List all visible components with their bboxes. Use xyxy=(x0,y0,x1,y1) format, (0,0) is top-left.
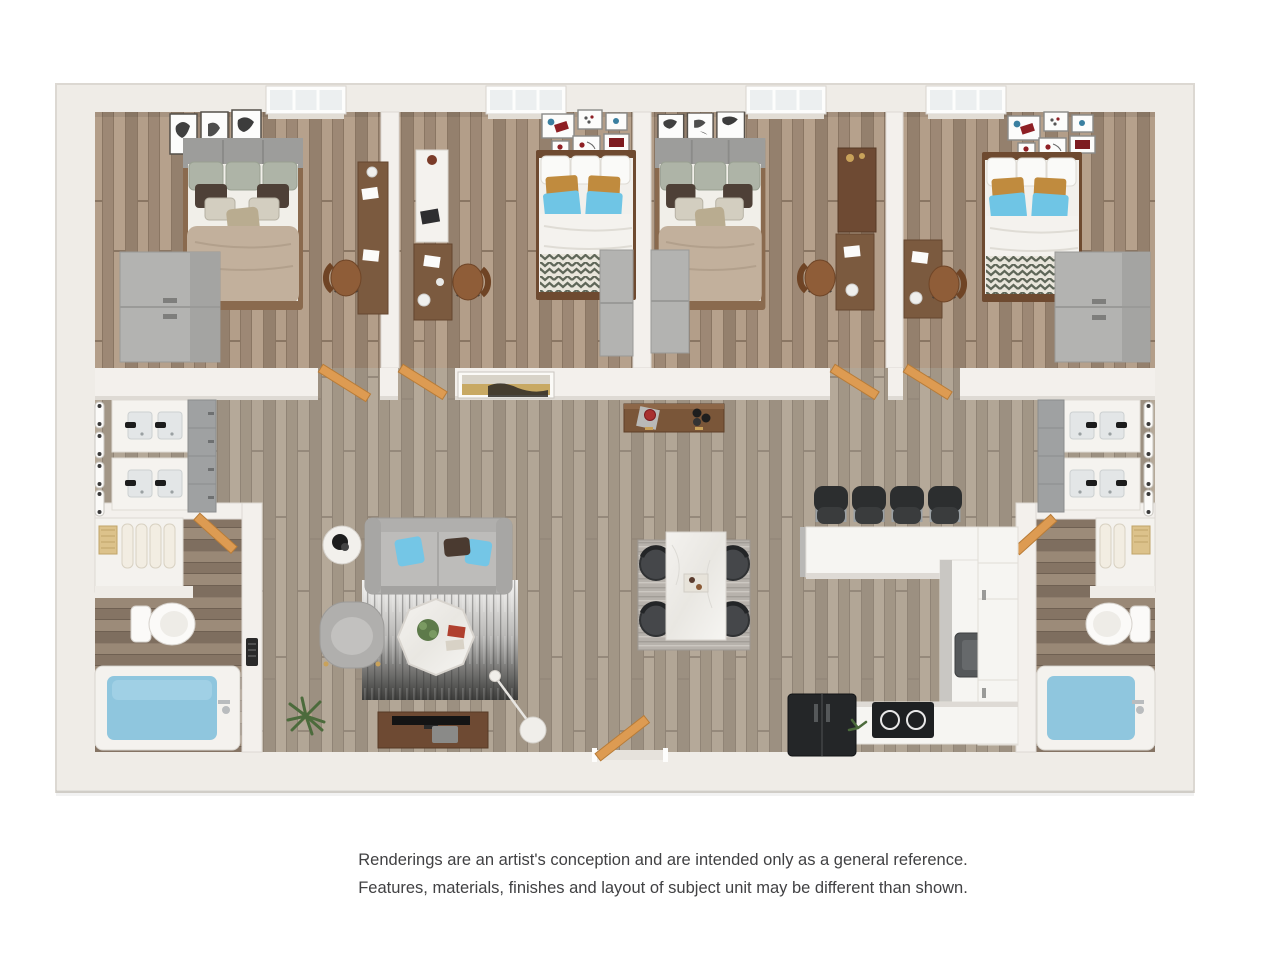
side-table-icon xyxy=(323,526,361,564)
wall-vent-icon xyxy=(246,638,258,666)
bedroom-3-chair-icon xyxy=(800,260,835,296)
refrigerator-icon xyxy=(788,694,856,756)
bedroom-3-wardrobe-icon xyxy=(838,148,876,232)
bar-stool-icon xyxy=(890,486,924,524)
bathroom-left-bathtub-icon xyxy=(95,666,240,750)
bedroom-2-desk-icon xyxy=(414,244,452,320)
bar-stool-icon xyxy=(852,486,886,524)
sconce-icon xyxy=(95,402,104,428)
bedroom-4-window-icon xyxy=(926,86,1006,119)
bedroom-3-wall-art-icon xyxy=(658,112,744,138)
floor-plan-svg xyxy=(0,0,1280,820)
floor-plan-image xyxy=(0,0,1280,820)
bedroom-3-dresser-icon xyxy=(651,250,689,353)
bathroom-left-vanity-2-icon xyxy=(112,458,188,510)
bathroom-left-cabinet-icon xyxy=(188,400,216,512)
sconce-icon xyxy=(1144,402,1153,428)
sofa-icon xyxy=(365,518,512,594)
bar-stool-icon xyxy=(928,486,962,524)
bathroom-right-towel-shelf-icon xyxy=(1090,518,1155,598)
bedroom-3-desk-icon xyxy=(836,234,874,310)
sconce-icon xyxy=(95,490,104,516)
bedroom-2-chair-icon xyxy=(453,264,488,300)
bedroom-2-dresser-icon xyxy=(600,250,633,356)
sconce-icon xyxy=(95,462,104,488)
hallway-art xyxy=(458,372,554,398)
bedroom-1-desk-icon xyxy=(358,162,388,314)
bathroom-right-toilet-icon xyxy=(1086,603,1150,645)
bathroom-right-cabinet-icon xyxy=(1038,400,1064,512)
bedroom-3-window-icon xyxy=(746,86,826,119)
disclaimer: Renderings are an artist's conception an… xyxy=(23,846,1280,902)
bathroom-left-toilet-icon xyxy=(131,603,195,645)
bedroom-4-chair-icon xyxy=(929,266,964,302)
dining-area xyxy=(638,532,750,650)
disclaimer-line-2: Features, materials, finishes and layout… xyxy=(23,874,1280,902)
bathroom-left-vanity-1-icon xyxy=(112,400,188,452)
bedroom-1-window-icon xyxy=(266,86,346,119)
bedroom-2-wardrobe-icon xyxy=(416,150,448,242)
bathroom-right-bathtub-icon xyxy=(1037,666,1155,750)
sconce-icon xyxy=(1144,490,1153,516)
cooktop-icon xyxy=(872,702,934,738)
console-table-icon xyxy=(624,404,724,432)
bar-stool-icon xyxy=(814,486,848,524)
tv-stand-icon xyxy=(378,712,488,748)
bathroom-left-towel-shelf-icon xyxy=(95,518,193,598)
bedroom-4-dresser-icon xyxy=(1055,252,1150,362)
bedroom-1-chair-icon xyxy=(326,260,361,296)
dining-table-icon xyxy=(666,532,726,640)
bedroom-1-dresser-icon xyxy=(120,252,220,362)
armchair-icon xyxy=(320,602,384,668)
coffee-table-icon xyxy=(398,599,474,675)
sconce-icon xyxy=(1144,432,1153,458)
sconce-icon xyxy=(1144,462,1153,488)
bathroom-right-vanity-2-icon xyxy=(1064,458,1140,510)
sconce-icon xyxy=(95,432,104,458)
bathroom-right-vanity-1-icon xyxy=(1064,400,1140,452)
disclaimer-line-1: Renderings are an artist's conception an… xyxy=(23,846,1280,874)
tv-icon xyxy=(392,716,470,725)
